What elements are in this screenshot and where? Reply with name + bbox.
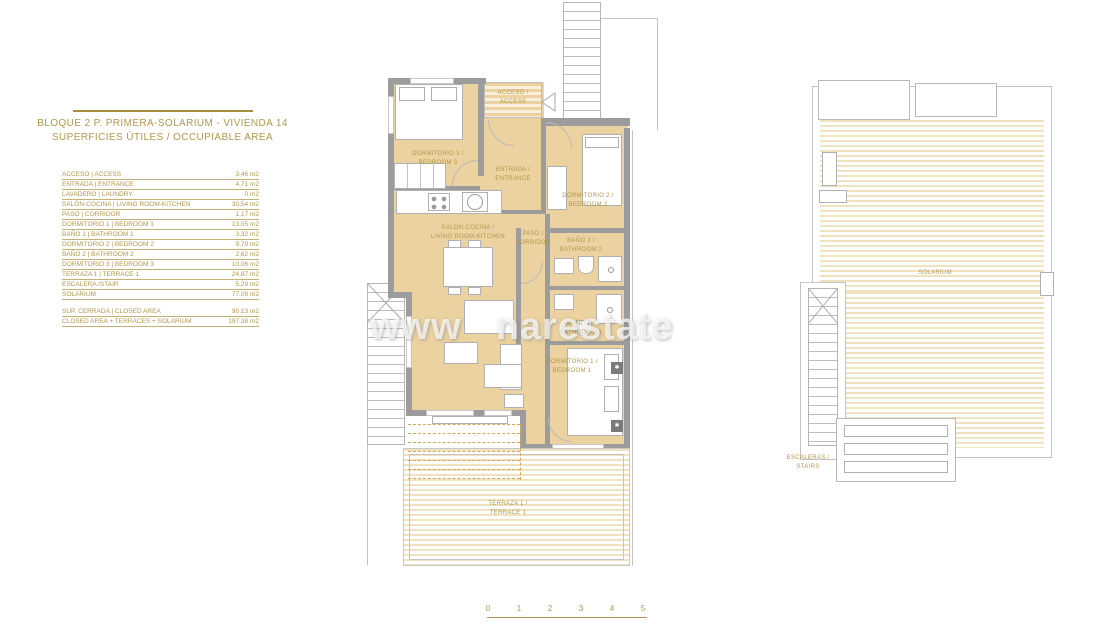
row-label: BAÑO 1 | BATHROOM 1 [62,232,134,239]
row-value: 5,29 m2 [236,282,260,289]
row-label: BAÑO 2 | BATHROOM 2 [62,252,134,259]
table-row: TERRAZA 1 | TERRACE 124,87 m2 [62,270,259,280]
pergola-line [408,433,520,434]
pillow [431,87,457,101]
wall [550,228,624,233]
watermark-text: narestate [496,306,674,349]
room-label-bedroom3: DORMITORIO 3 / BEDROOM 3 [398,150,478,169]
row-label: DORMITORIO 3 | BEDROOM 3 [62,262,154,269]
chair [448,287,461,295]
row-label: TERRAZA 1 | TERRACE 1 [62,272,139,279]
window [388,96,394,134]
row-value: 9,79 m2 [236,242,260,249]
row-label: LAVADERO | LAUNDRY [62,192,133,199]
planter [844,461,948,473]
solarium-deck [820,120,1044,292]
chair [468,287,481,295]
fixture [822,152,837,186]
scale-line [487,617,647,618]
row-value: 13,05 m2 [232,222,259,229]
window-sill [432,416,508,424]
table-row: BAÑO 2 | BATHROOM 22,62 m2 [62,250,259,260]
scale-tick: 5 [638,604,648,613]
row-value: 1,17 m2 [236,212,260,219]
scale-tick: 0 [483,604,493,613]
row-value: 0 m2 [245,192,259,199]
wall [550,286,624,290]
watermark-text: www [370,306,462,349]
row-label: PASO | CORRIDOR [62,212,120,219]
wall [478,78,484,176]
table-summary-row: CLOSED AREA + TERRACES + SOLARIUM197,38 … [62,317,259,327]
scale-tick: 4 [607,604,617,613]
scale-tick: 1 [514,604,524,613]
watermark: www narestate [370,306,674,349]
roof-box [818,80,910,120]
pillow [585,137,619,148]
row-label: ESCALERA /STAIR [62,282,119,289]
pergola-line [408,478,520,479]
table-row: ENTRADA | ENTRANCE4,71 m2 [62,180,259,190]
stove [428,193,450,211]
roof-box [915,83,997,117]
bathroom-sink [554,258,574,274]
room-label-terrace: TERRAZA 1 / TERRACE 1 [470,500,546,519]
room-label-entrada: ENTRADA / ENTRANCE [484,166,542,185]
toilet [578,256,594,274]
table-row: DORMITORIO 2 | BEDROOM 29,79 m2 [62,240,259,250]
row-value: 3,32 m2 [236,232,260,239]
ceiling-lamp-icon [611,420,623,432]
row-label: SUP. CERRADA | CLOSED AREA [62,309,161,316]
planter [844,443,948,455]
dining-table [443,247,493,287]
table-row: DORMITORIO 3 | BEDROOM 310,06 m2 [62,260,259,270]
pillow [399,87,425,101]
scale-tick: 3 [576,604,586,613]
shower [598,256,622,282]
access-arrow-icon [540,92,556,112]
site-line [367,445,368,565]
table-row: BAÑO 1 | BATHROOM 13,32 m2 [62,230,259,240]
stair-cross-icon [808,288,838,324]
wall [624,128,630,450]
row-value: 197,38 m2 [228,319,259,326]
pergola-line [520,424,521,480]
row-label: ACCESO | ACCESS [62,172,121,179]
row-label: CLOSED AREA + TERRACES + SOLARIUM [62,319,192,326]
title-overline [73,110,253,112]
table-summary-row: SUP. CERRADA | CLOSED AREA90,13 m2 [62,307,259,317]
page-title: BLOQUE 2 P. PRIMERA-SOLARIUM - VIVIENDA … [20,118,305,129]
row-value: 30,54 m2 [232,202,259,209]
table-row: PASO | CORRIDOR1,17 m2 [62,210,259,220]
row-value: 2,62 m2 [236,252,260,259]
row-value: 77,09 m2 [232,292,259,299]
room-label-bedroom2: DORMITORIO 2 / BEDROOM 2 [552,192,624,211]
pergola-line [408,451,520,452]
pergola-line [408,460,520,461]
pillow [604,386,619,412]
table-gap [62,300,259,307]
row-value: 4,71 m2 [236,182,260,189]
table-row: DORMITORIO 1 | BEDROOM 113,05 m2 [62,220,259,230]
row-value: 90,13 m2 [232,309,259,316]
row-label: DORMITORIO 2 | BEDROOM 2 [62,242,154,249]
row-label: DORMITORIO 1 | BEDROOM 1 [62,222,154,229]
area-table: ACCESO | ACCESS3,46 m2 ENTRADA | ENTRANC… [62,170,259,327]
title-block: BLOQUE 2 P. PRIMERA-SOLARIUM - VIVIENDA … [20,110,305,143]
room-label-bedroom1: DORMITORIO 1 / BEDROOM 1 [544,358,600,377]
table-row: SOLARIUM77,09 m2 [62,290,259,300]
table-row: LAVADERO | LAUNDRY0 m2 [62,190,259,200]
planter [844,425,948,437]
row-value: 24,87 m2 [232,272,259,279]
table-row: ACCESO | ACCESS3,46 m2 [62,170,259,180]
scale-tick: 2 [545,604,555,613]
room-label-salon: SALÓN-COCINA / LIVING ROOM-KITCHEN [420,224,516,243]
fixture [1040,272,1054,296]
table-row: ESCALERA /STAIR5,29 m2 [62,280,259,290]
row-value: 3,46 m2 [236,172,260,179]
solarium-deck [950,422,1044,448]
table-row: SALÓN-COCINA | LIVING ROOM-KITCHEN30,54 … [62,200,259,210]
exterior-stairs-top [563,2,601,130]
room-label-solarium: SOLARIUM [900,269,970,278]
site-line [657,18,658,130]
pergola-line [408,442,520,443]
row-label: SOLARIUM [62,292,96,299]
floorplan-page: BLOQUE 2 P. PRIMERA-SOLARIUM - VIVIENDA … [0,0,1110,626]
kitchen-sink [467,194,483,210]
ceiling-lamp-icon [611,362,623,374]
tv-stand [504,394,524,408]
row-value: 10,06 m2 [232,262,259,269]
pergola-line [408,469,520,470]
sofa [484,364,522,388]
row-label: ENTRADA | ENTRANCE [62,182,134,189]
page-subtitle: SUPERFICIES ÚTILES / OCCUPIABLE AREA [20,132,305,143]
solarium-deck [838,292,1044,422]
site-line [601,18,658,19]
room-label-stairs: ESCALERAS / STAIRS [776,454,840,473]
fixture [819,190,847,203]
row-label: SALÓN-COCINA | LIVING ROOM-KITCHEN [62,202,190,209]
pergola-line [408,424,520,425]
room-label-bath2: BAÑO 2 / BATHROOM 2 [556,237,606,256]
room-label-acceso: ACCESO / ACCESS [486,89,540,108]
room-label-paso: PASO / CORRIDOR [512,230,554,249]
